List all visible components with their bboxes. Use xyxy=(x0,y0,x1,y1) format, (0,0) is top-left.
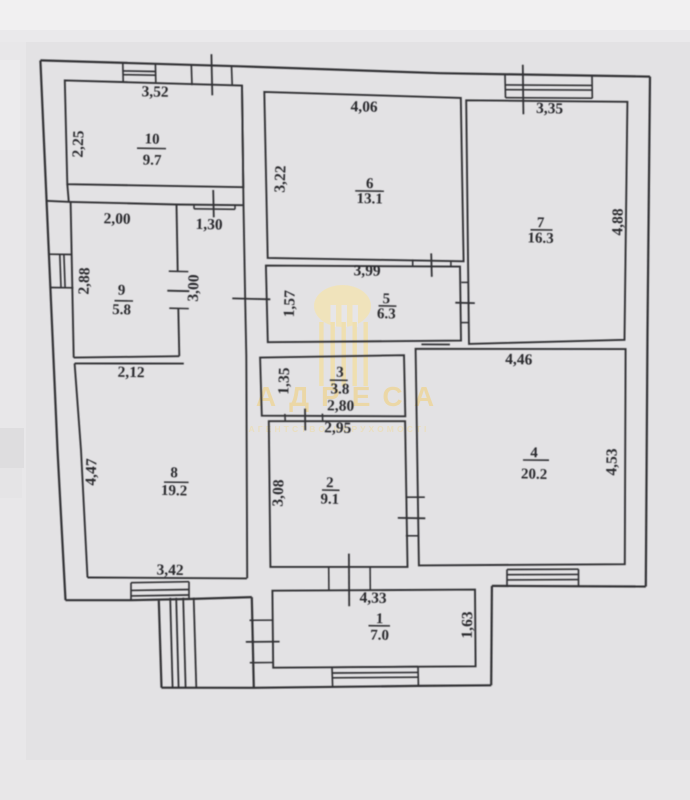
svg-text:3,35: 3,35 xyxy=(536,100,564,118)
svg-text:2,95: 2,95 xyxy=(324,419,352,437)
svg-text:2,12: 2,12 xyxy=(117,364,145,382)
svg-text:4,06: 4,06 xyxy=(350,98,378,116)
svg-text:13.1: 13.1 xyxy=(356,191,383,208)
svg-text:9: 9 xyxy=(118,283,126,299)
svg-text:3,08: 3,08 xyxy=(270,479,288,507)
svg-text:1: 1 xyxy=(376,611,384,627)
svg-text:19.2: 19.2 xyxy=(161,483,188,500)
svg-text:10: 10 xyxy=(144,131,159,147)
svg-text:1,35: 1,35 xyxy=(275,367,293,395)
svg-text:20.2: 20.2 xyxy=(521,466,548,483)
svg-text:4,46: 4,46 xyxy=(505,351,533,369)
svg-text:4: 4 xyxy=(530,445,538,461)
svg-text:4,33: 4,33 xyxy=(359,589,387,607)
svg-text:16.3: 16.3 xyxy=(527,230,554,247)
svg-text:4,53: 4,53 xyxy=(603,448,620,476)
svg-text:6: 6 xyxy=(366,176,374,192)
svg-text:5.8: 5.8 xyxy=(112,302,131,318)
svg-text:1,63: 1,63 xyxy=(459,611,476,639)
svg-text:3,00: 3,00 xyxy=(185,274,203,302)
svg-text:2: 2 xyxy=(326,475,334,491)
svg-text:1,57: 1,57 xyxy=(281,290,299,318)
svg-text:2,00: 2,00 xyxy=(103,210,131,228)
svg-text:9.7: 9.7 xyxy=(143,152,163,168)
svg-text:6.3: 6.3 xyxy=(377,306,396,322)
svg-text:2,88: 2,88 xyxy=(76,267,94,295)
svg-text:2,25: 2,25 xyxy=(70,130,88,158)
svg-text:3,42: 3,42 xyxy=(156,561,184,579)
svg-text:4,47: 4,47 xyxy=(83,458,101,486)
svg-text:3.8: 3.8 xyxy=(330,381,349,397)
svg-text:9.1: 9.1 xyxy=(320,491,339,507)
svg-text:3,52: 3,52 xyxy=(141,83,169,101)
svg-text:4,88: 4,88 xyxy=(609,208,626,236)
svg-text:2,80: 2,80 xyxy=(327,397,355,415)
svg-text:7: 7 xyxy=(537,215,545,231)
svg-text:3,99: 3,99 xyxy=(353,262,381,280)
svg-text:3: 3 xyxy=(336,365,344,381)
svg-text:3,22: 3,22 xyxy=(272,165,290,193)
svg-text:8: 8 xyxy=(170,465,178,481)
svg-text:7.0: 7.0 xyxy=(370,627,389,643)
svg-text:5: 5 xyxy=(382,291,390,307)
svg-text:1,30: 1,30 xyxy=(195,216,223,234)
